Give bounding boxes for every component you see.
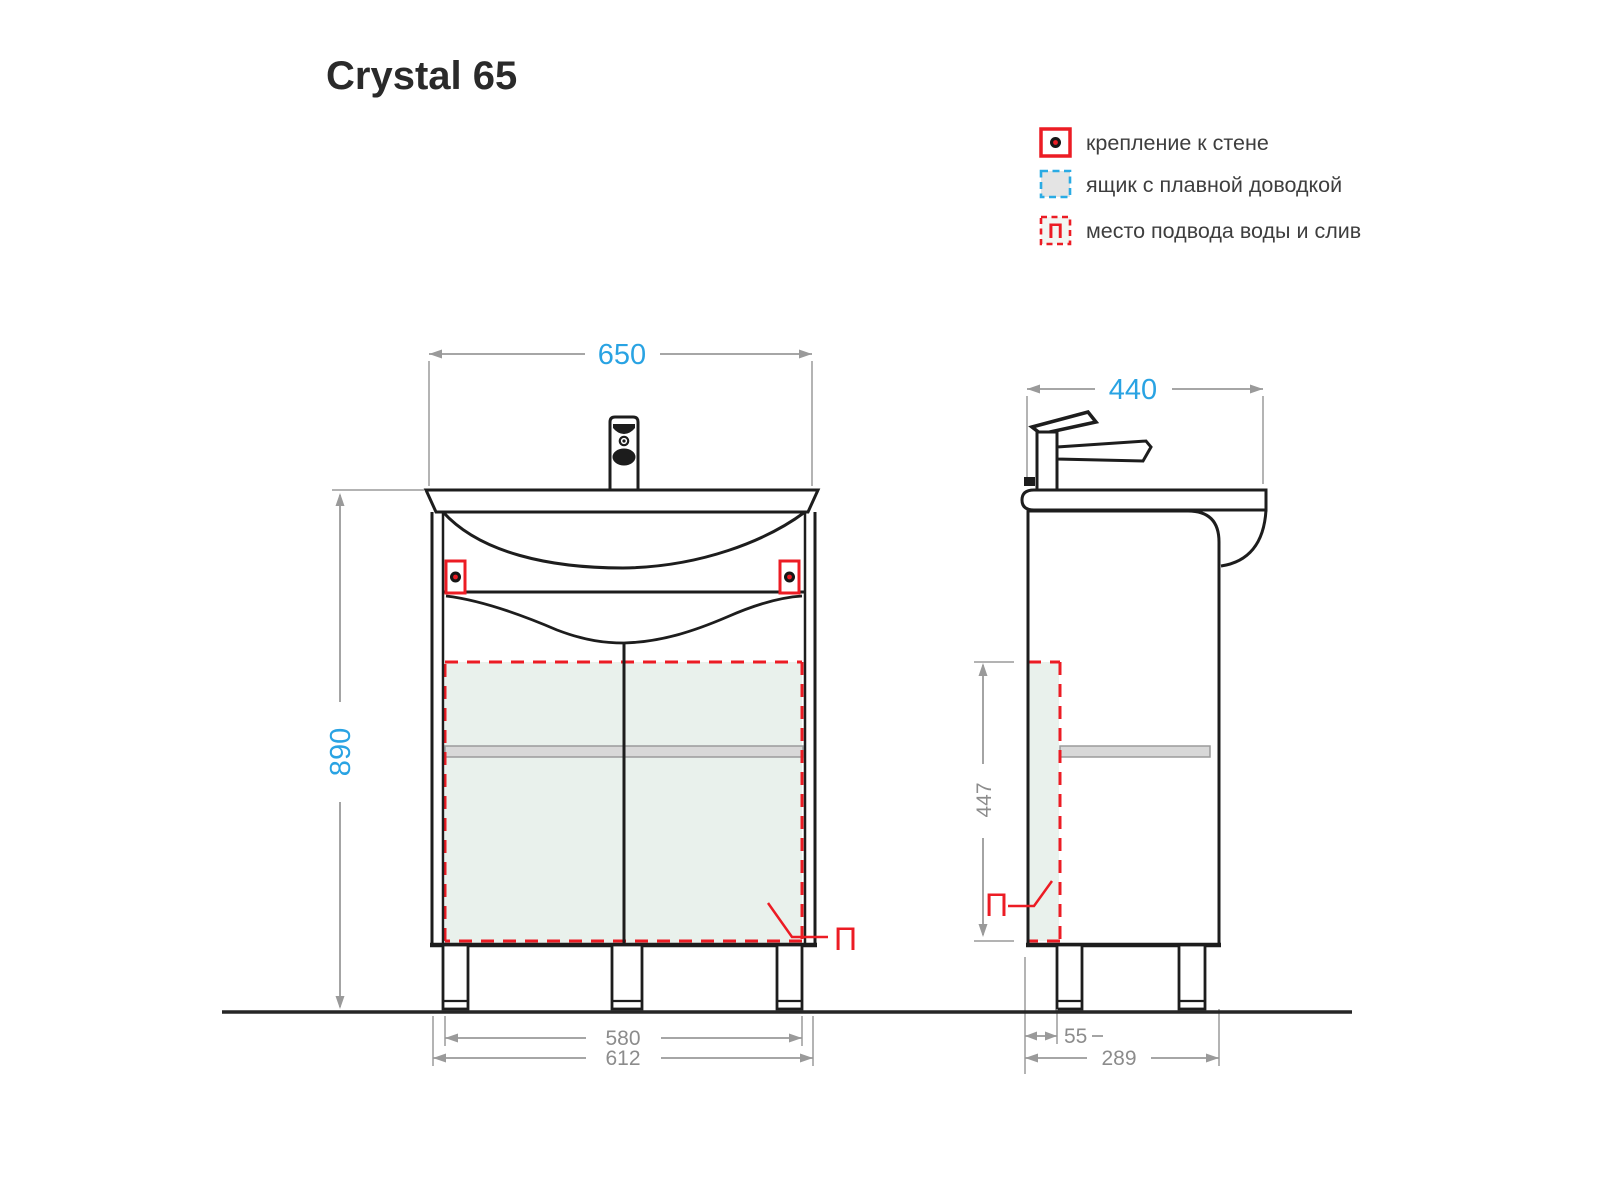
vanity-technical-drawing: Crystal 65 крепление к стене ящик с плав… <box>0 0 1600 1200</box>
wall-mount-marker-right <box>780 561 799 593</box>
dim-front-legs-span: 580 <box>445 1016 802 1050</box>
legs-side <box>1057 945 1205 1009</box>
legs-front <box>443 945 802 1009</box>
apron-curve-front <box>446 596 802 643</box>
side-view: 440 <box>973 374 1266 1074</box>
leg <box>1179 945 1205 1009</box>
legend-item-wall-mount: крепление к стене <box>1041 129 1269 156</box>
basin-curve-front <box>443 512 805 568</box>
legend-item-water-drain: П место подвода воды и слив <box>1041 217 1361 244</box>
legend: крепление к стене ящик с плавной доводко… <box>1041 129 1361 244</box>
faucet-side <box>1024 412 1151 490</box>
sink-top-side <box>1022 490 1266 510</box>
dim-side-base-depth: 289 <box>1025 1009 1219 1070</box>
drain-zone-side <box>1029 662 1059 941</box>
leg <box>1057 945 1082 1009</box>
faucet-spout <box>1057 441 1151 461</box>
front-view: 650 890 <box>325 339 857 1070</box>
dim-side-depth-value: 440 <box>1109 374 1157 406</box>
leg <box>443 945 468 1009</box>
faucet-front <box>610 417 638 490</box>
dim-side-back-offset-value: 55 <box>1064 1025 1087 1048</box>
legend-item-soft-close-drawer: ящик с плавной доводкой <box>1041 171 1342 197</box>
bowl-curve-side <box>1221 510 1266 566</box>
sink-top-front <box>426 490 818 512</box>
legend-label-wall-mount: крепление к стене <box>1086 131 1269 155</box>
dim-front-height: 890 <box>325 490 424 1009</box>
legend-label-drawer: ящик с плавной доводкой <box>1086 173 1342 197</box>
wall-mount-marker-left <box>446 561 465 593</box>
legend-label-water-drain: место подвода воды и слив <box>1086 219 1361 243</box>
dim-front-width-value: 650 <box>598 339 646 371</box>
dim-side-base-depth-value: 289 <box>1101 1047 1136 1070</box>
legend-letter-p: П <box>1048 220 1063 243</box>
leg <box>612 945 642 1009</box>
dim-front-base-width-value: 612 <box>605 1047 640 1070</box>
dim-side-zone-height-value: 447 <box>973 782 996 817</box>
dim-front-height-value: 890 <box>325 728 357 776</box>
leg <box>777 945 802 1009</box>
drain-marker-letter-side: П <box>985 887 1008 923</box>
drain-marker-letter-front: П <box>834 921 857 957</box>
shelf-side <box>1060 746 1210 757</box>
soft-close-drawer-icon <box>1041 171 1070 197</box>
page-title: Crystal 65 <box>326 54 517 98</box>
